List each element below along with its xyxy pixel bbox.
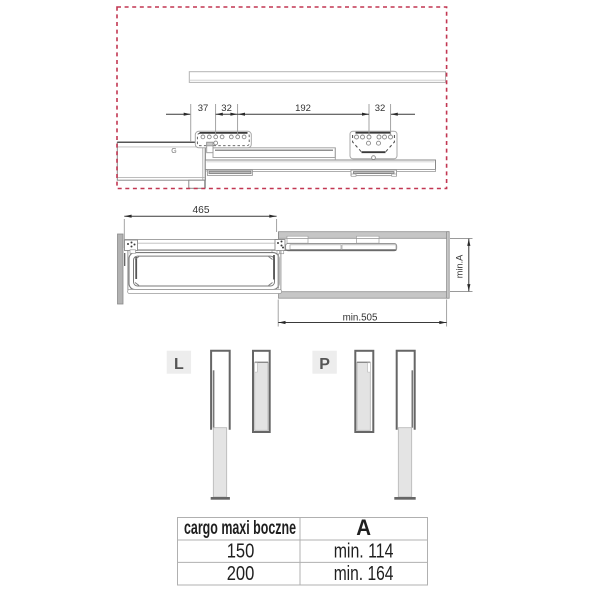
svg-text:32: 32 bbox=[221, 103, 232, 114]
svg-text:cargo maxi boczne: cargo maxi boczne bbox=[184, 517, 296, 539]
svg-text:P: P bbox=[319, 356, 330, 373]
svg-text:min. 164: min. 164 bbox=[334, 562, 394, 585]
svg-text:min.505: min.505 bbox=[343, 312, 378, 323]
svg-text:G: G bbox=[171, 148, 176, 155]
svg-text:min. 114: min. 114 bbox=[334, 539, 394, 562]
svg-text:465: 465 bbox=[193, 205, 210, 216]
svg-text:L: L bbox=[174, 356, 184, 373]
svg-text:192: 192 bbox=[295, 103, 311, 114]
svg-text:A: A bbox=[356, 515, 371, 540]
svg-text:150: 150 bbox=[227, 539, 255, 562]
svg-text:32: 32 bbox=[375, 103, 386, 114]
svg-text:200: 200 bbox=[227, 562, 255, 585]
svg-text:37: 37 bbox=[198, 103, 209, 114]
svg-text:min.A: min.A bbox=[455, 254, 465, 278]
